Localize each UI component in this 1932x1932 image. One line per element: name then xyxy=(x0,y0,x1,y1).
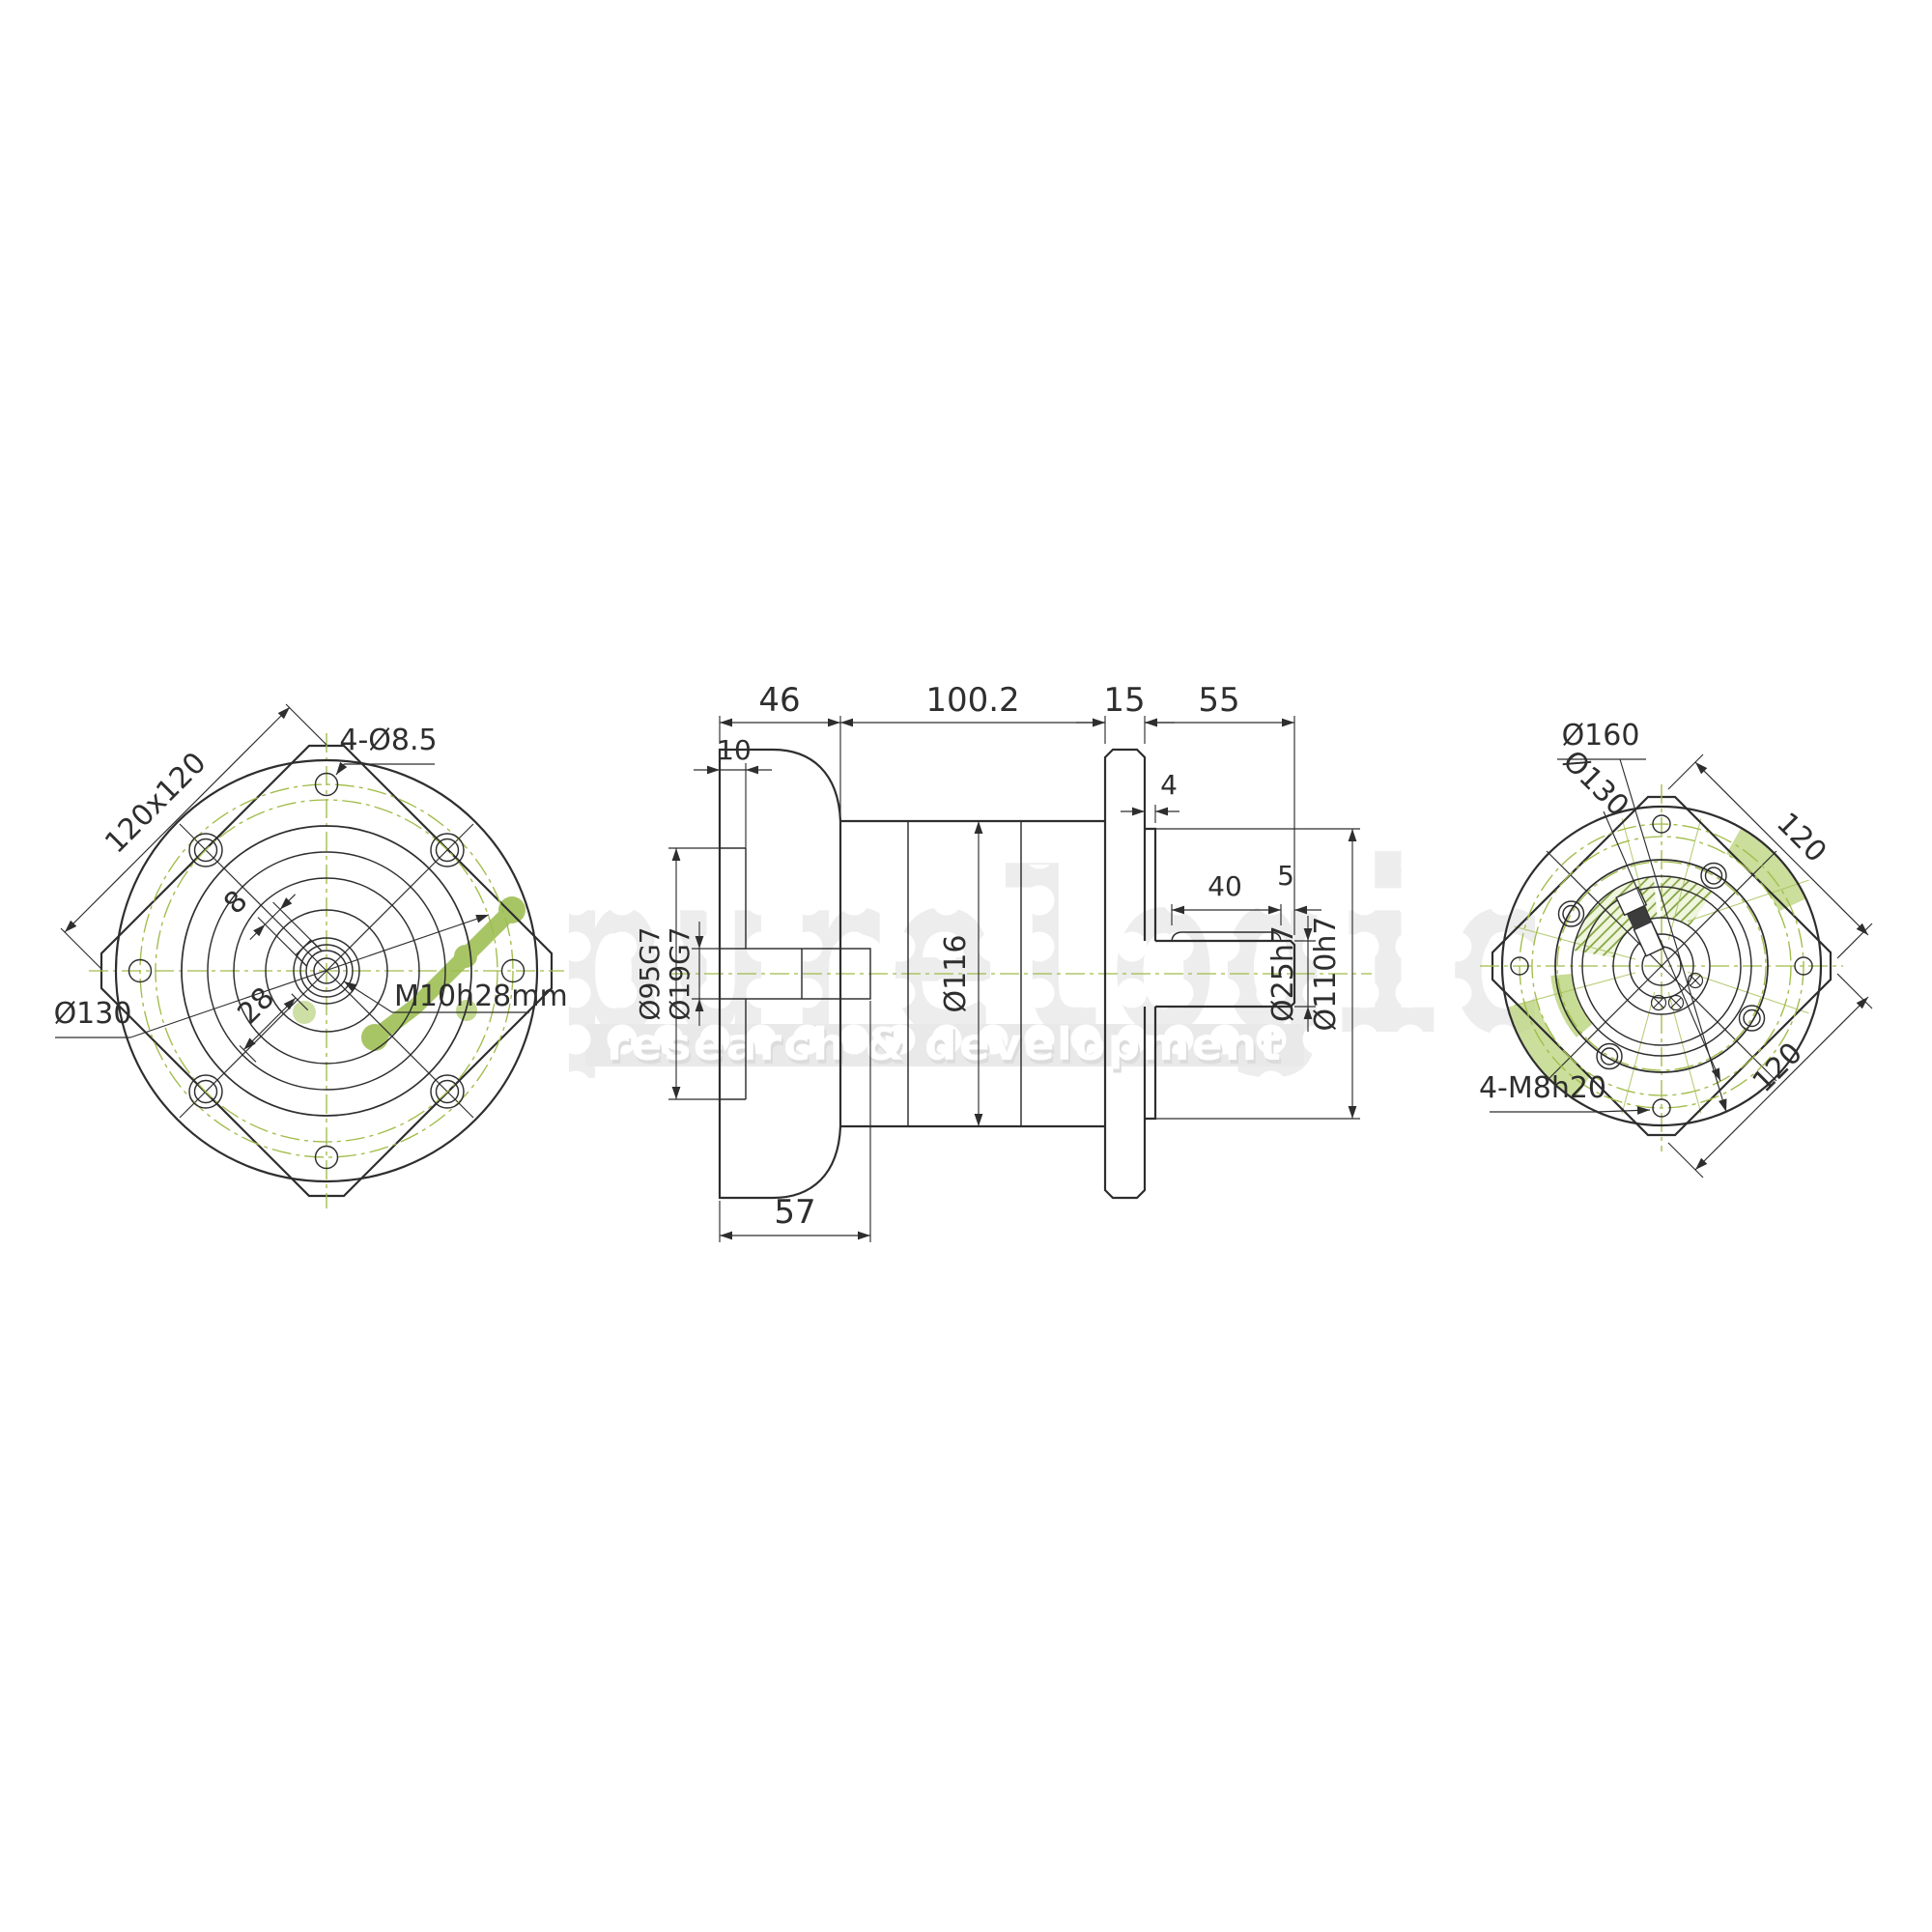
side-bore-dia-label: Ø19G7 xyxy=(664,926,696,1020)
side-dim-pilot-protrusion: 4 xyxy=(1121,769,1179,823)
rear-dim-square-bottom: 120 xyxy=(1668,974,1872,1178)
side-shaft-dia-label: Ø25h7 xyxy=(1266,925,1300,1022)
logo-node-icon xyxy=(454,945,477,968)
front-bolt-circle-label: Ø130 xyxy=(54,997,132,1031)
rear-outer-dia-label: Ø160 xyxy=(1562,719,1640,753)
front-dim-keyway-width: 8 xyxy=(217,884,311,955)
side-dim-100-2: 100.2 xyxy=(925,681,1019,720)
side-dim-15: 15 xyxy=(1103,681,1145,720)
rear-position-symbols xyxy=(1652,974,1703,1010)
side-key-length-label: 40 xyxy=(1207,870,1242,902)
logo-node-icon xyxy=(293,1001,316,1024)
side-pilot-protrusion-label: 4 xyxy=(1160,769,1178,801)
side-recess-depth-label: 10 xyxy=(717,734,752,766)
side-body-dia-label: Ø116 xyxy=(939,935,973,1013)
side-flange-total-label: 57 xyxy=(774,1193,815,1232)
cad-drawing: purelogic research & development researc… xyxy=(0,0,1932,1932)
side-recess-dia-label: Ø95G7 xyxy=(634,926,666,1020)
front-dim-square: 120x120 xyxy=(61,704,327,969)
side-dim-55: 55 xyxy=(1198,681,1239,720)
watermark-tagline-text: research & development xyxy=(607,1018,1283,1070)
front-dim-center-thread: M10h28mm xyxy=(344,980,568,1013)
drawing-canvas: purelogic research & development researc… xyxy=(0,0,1932,1932)
side-pilot-dia-label: Ø110h7 xyxy=(1309,917,1343,1032)
front-square-dim-label: 120x120 xyxy=(99,746,213,860)
front-keyway-width-label: 8 xyxy=(217,884,254,921)
front-center-thread-label: M10h28mm xyxy=(394,980,568,1013)
front-corner-holes-label: 4-Ø8.5 xyxy=(339,724,437,757)
front-dim-corner-holes: 4-Ø8.5 xyxy=(336,724,438,775)
side-key-end-label: 5 xyxy=(1277,860,1294,892)
side-dim-46: 46 xyxy=(758,681,800,720)
rear-tapped-holes-label: 4-M8h20 xyxy=(1479,1071,1606,1105)
